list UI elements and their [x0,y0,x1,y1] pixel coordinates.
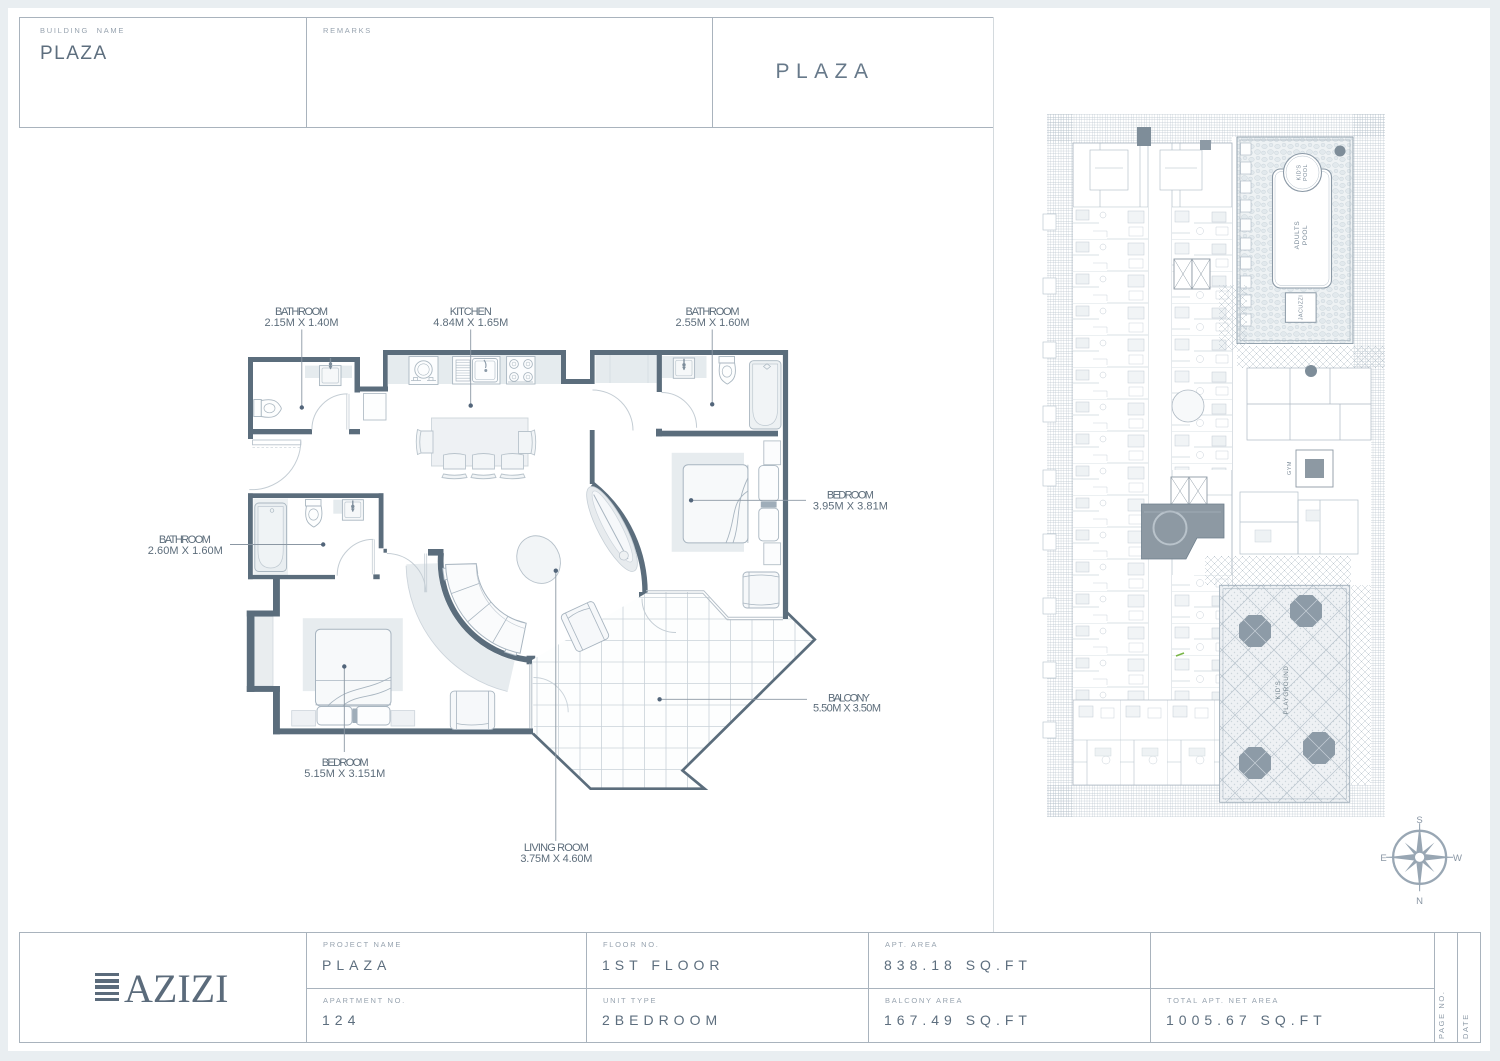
svg-text:2.60M X 1.60M: 2.60M X 1.60M [148,545,223,557]
svg-text:GYM: GYM [1287,461,1293,475]
svg-text:E: E [1380,853,1386,864]
svg-text:JACUZZI: JACUZZI [1299,295,1305,320]
svg-text:2.55M X 1.60M: 2.55M X 1.60M [676,317,750,329]
svg-text:5.50M X 3.50M: 5.50M X 3.50M [813,703,881,715]
svg-text:2.15M X 1.40M: 2.15M X 1.40M [265,317,339,329]
svg-text:3.95M X 3.81M: 3.95M X 3.81M [813,501,888,513]
svg-text:ADULTSPOOL: ADULTSPOOL [1294,221,1309,250]
svg-text:4.84M X 1.65M: 4.84M X 1.65M [433,317,508,329]
svg-text:5.15M X 3.151M: 5.15M X 3.151M [304,768,385,780]
svg-text:KID'SPOOL: KID'SPOOL [1297,164,1310,181]
svg-text:N: N [1416,896,1423,907]
svg-text:3.75M X 4.60M: 3.75M X 4.60M [520,853,592,865]
svg-text:S: S [1416,815,1422,826]
svg-text:W: W [1453,853,1462,864]
